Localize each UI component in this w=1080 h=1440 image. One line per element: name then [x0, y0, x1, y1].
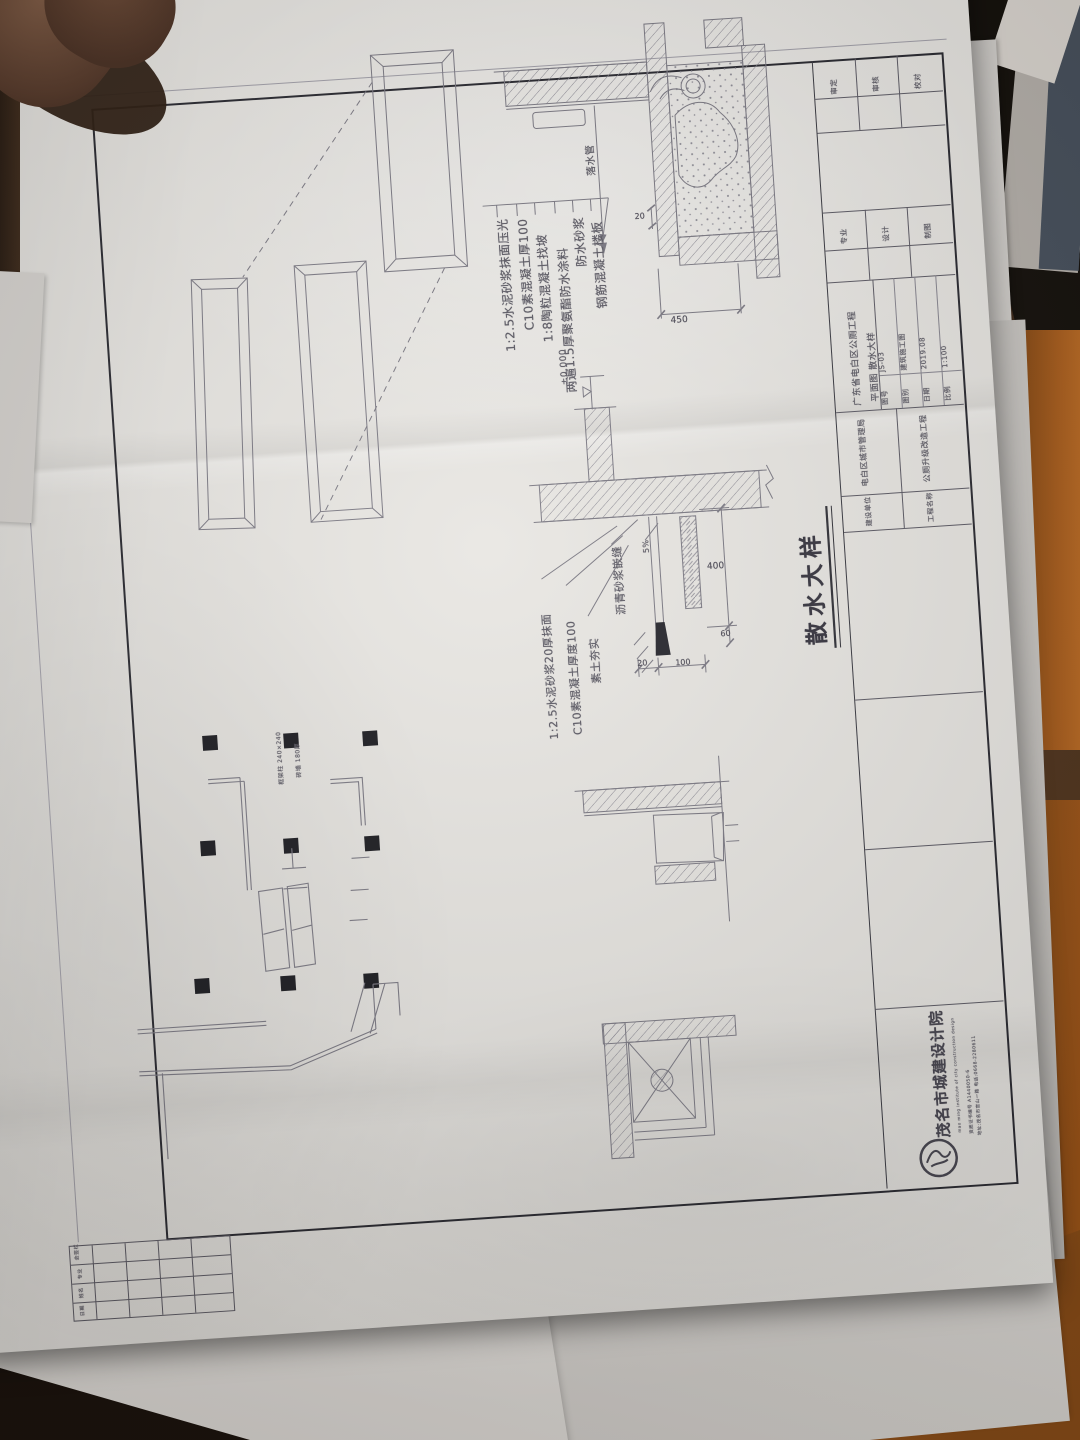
corner-table-row-3: 日期 [79, 1305, 87, 1316]
sig-label-zhuanye: 专业 [838, 228, 850, 245]
field-label-tuhao: 图号 [880, 390, 891, 406]
corner-table-row-1: 专业 [76, 1268, 84, 1279]
note-roof-layer-5: 防水砂浆 [570, 216, 590, 267]
sig-label-jiaodui: 校对 [912, 73, 924, 90]
sig-label-shenhe: 审核 [870, 76, 882, 93]
signboard-frames-drawing [168, 50, 483, 532]
dim-400: 400 [707, 561, 725, 572]
corner-sign-table [69, 1235, 236, 1322]
plan-columns [178, 724, 394, 1000]
photo-of-drawing: 1:2.5水泥砂浆抹面压光 C10素混凝土厚100 1:8陶粒混凝土找坡 两遍1… [0, 0, 1080, 1440]
project-label: 工程名称 [925, 492, 937, 523]
drain-plan-drawing [602, 1015, 744, 1159]
apron-detail-drawing [522, 365, 786, 684]
corner-table-row-2: 姓名 [77, 1287, 85, 1298]
field-label-riqi: 日期 [922, 387, 933, 403]
dim-100: 100 [675, 657, 691, 667]
dim-20-gutter: 20 [634, 211, 645, 221]
sig-label-sheji: 设计 [880, 225, 892, 242]
field-value-tuhao: JS-03 [877, 351, 886, 372]
field-label-bili: 比例 [943, 385, 954, 401]
slope-mark: 5% [641, 539, 651, 553]
floor-plan-drawing [117, 724, 408, 1161]
field-value-bili: 1:100 [940, 345, 949, 368]
sig-label-zhitu: 制图 [922, 222, 934, 239]
field-label-tubie: 图别 [901, 388, 912, 404]
dim-60: 60 [720, 629, 731, 639]
drawing-sheet: 1:2.5水泥砂浆抹面压光 C10素混凝土厚100 1:8陶粒混凝土找坡 两遍1… [0, 0, 1053, 1354]
design-institute-logo [915, 1135, 962, 1182]
client-label: 建设单位 [863, 496, 875, 527]
note-apron-3: 素土夯实 [585, 637, 604, 684]
channel-detail-drawing [573, 755, 745, 931]
label-downpipe: 落水管 [581, 144, 598, 176]
dim-450: 450 [670, 315, 688, 326]
dim-20-apron: 20 [637, 658, 648, 668]
sig-label-shending: 审定 [828, 78, 840, 95]
corner-table-title: 会签栏 [73, 1244, 81, 1261]
